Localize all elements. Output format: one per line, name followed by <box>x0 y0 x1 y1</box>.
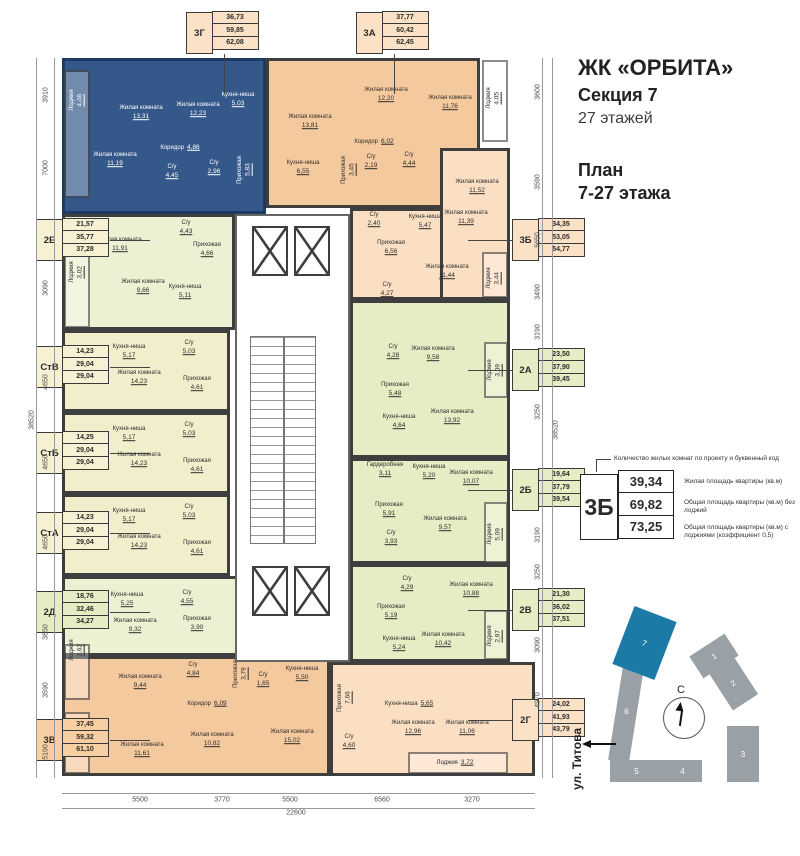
room-area: 3,90 <box>183 624 211 632</box>
room-area: 4,29 <box>401 584 414 592</box>
dimension-label: 3090 <box>43 280 50 296</box>
unit-areas: 36,7359,8562,08 <box>213 12 259 54</box>
room-name: Прихожая <box>377 604 405 612</box>
room-name: Лоджия <box>69 639 77 660</box>
room-area: 1,65 <box>257 680 270 688</box>
dim-line-left <box>54 58 55 778</box>
room-label: Жилая комната13,81 <box>288 114 331 130</box>
room-area: 5,03 <box>183 348 196 356</box>
room-label: С/у4,84 <box>187 662 200 678</box>
room-name: С/у <box>257 672 270 680</box>
room-name: Прихожая <box>183 458 211 466</box>
room-area: 14,23 <box>117 460 160 468</box>
room-area: 3,62 <box>77 639 85 660</box>
room-label: Жилая комната12,23 <box>176 102 219 118</box>
legend-callout-line <box>596 459 611 472</box>
dim-line-right-total <box>552 58 553 778</box>
room-name: Жилая комната <box>428 95 471 103</box>
room-name: С/у <box>208 160 221 168</box>
unit-leader-line <box>110 367 150 368</box>
room-label: Лоджия3,62 <box>69 639 85 660</box>
unit-area-value: 34,27 <box>62 615 109 629</box>
dimension-total-label: 22600 <box>286 810 305 817</box>
room-area: 11,52 <box>455 187 498 195</box>
room-label: Жилая комната10,88 <box>449 582 492 598</box>
unit-area-value: 54,77 <box>538 243 585 257</box>
room-name: Прихожая <box>193 242 221 250</box>
room-label: Прихожая3,45 <box>341 156 357 184</box>
room-name: Жилая комната <box>120 742 163 750</box>
room-label: Прихожая5,48 <box>381 382 409 398</box>
room-label: С/у4,44 <box>403 152 416 168</box>
dimension-label: 7000 <box>43 160 50 176</box>
room-area: 6,02 <box>381 138 394 146</box>
room-label: Жилая комната14,23 <box>117 370 160 386</box>
legend-sample-code: 3Б <box>580 474 618 540</box>
unit-area-value: 29,04 <box>62 456 109 470</box>
room-label: С/у1,65 <box>257 672 270 688</box>
room-label: Кухня-ниша5,47 <box>409 214 442 230</box>
unit-areas: 34,3553,0554,77 <box>539 219 585 261</box>
room-area: 10,07 <box>449 478 492 486</box>
dimension-label: 3590 <box>535 174 542 190</box>
dim-line-right <box>542 58 543 778</box>
room-label: Прихожая4,61 <box>183 458 211 474</box>
unit-area-value: 37,28 <box>62 243 109 257</box>
room-name: Кухня-ниша <box>413 464 446 472</box>
room-name: Лоджия <box>486 267 494 288</box>
room-name: Жилая комната <box>270 729 313 737</box>
room-name: Прихожая <box>375 502 403 510</box>
room-area: 3,72 <box>461 759 474 767</box>
dimension-label: 3770 <box>214 797 230 804</box>
room-label: С/у2,40 <box>368 212 381 228</box>
room-area: 4,86 <box>187 144 200 152</box>
room-label: Жилая комната11,39 <box>444 210 487 226</box>
dimension-label: 3490 <box>535 284 542 300</box>
legend-value-total: 69,82 <box>618 492 674 516</box>
room-area: 5,25 <box>111 600 144 608</box>
room-area: 4,64 <box>383 422 416 430</box>
dim-line-bottom <box>62 793 535 794</box>
section-title: Секция 7 <box>578 85 658 106</box>
unit-label-3А[interactable]: 3А37,7760,4262,45 <box>356 12 429 54</box>
room-area: 13,92 <box>430 417 473 425</box>
room-name: Кухня-ниша <box>385 701 418 709</box>
room-label: Жилая комната9,44 <box>118 674 161 690</box>
room-area: 3,11 <box>367 470 403 478</box>
room-label: Кухня-ниша5,03 <box>222 92 255 108</box>
room-area: 12,20 <box>364 95 407 103</box>
room-name: Жилая комната <box>423 516 466 524</box>
room-label: С/у4,27 <box>381 282 394 298</box>
room-name: С/у <box>403 152 416 160</box>
dimension-label: 4970 <box>535 692 542 708</box>
unit-areas: 37,4559,3261,10 <box>63 719 109 761</box>
room-label: Кухня-ниша5,25 <box>111 592 144 608</box>
room-label: Прихожая4,61 <box>183 540 211 556</box>
floor-plan-page: Жилая комната13,31Жилая комната12,23Кухн… <box>0 0 800 856</box>
room-label: Кухня-ниша5,11 <box>169 284 202 300</box>
room-name: С/у <box>365 154 378 162</box>
room-area: 4,61 <box>183 548 211 556</box>
room-area: 3,44 <box>494 267 502 288</box>
room-label: Жилая комната15,02 <box>270 729 313 745</box>
room-label: Жилая комната10,42 <box>421 632 464 648</box>
room-area: 11,06 <box>445 728 488 736</box>
dimension-label: 3850 <box>43 624 50 640</box>
room-area: 2,97 <box>495 625 503 646</box>
room-label: Прихожая6,56 <box>377 240 405 256</box>
room-area: 10,82 <box>190 740 233 748</box>
room-label: Кухня-ниша5,24 <box>383 636 416 652</box>
unit-leader-line <box>110 740 150 741</box>
unit-areas: 14,2329,0429,04 <box>63 512 109 554</box>
room-area: 4,84 <box>187 670 200 678</box>
room-name: Кухня-ниша <box>111 592 144 600</box>
room-name: Жилая комната <box>391 720 434 728</box>
unit-label-2В[interactable]: 2В21,3036,0237,51 <box>512 589 585 631</box>
room-name: Кухня-ниша <box>383 414 416 422</box>
room-label: С/у2,19 <box>365 154 378 170</box>
unit-label-2А[interactable]: 2А23,5037,9039,45 <box>512 349 585 391</box>
room-name: Кухня-ниша <box>383 636 416 644</box>
room-name: Жилая комната <box>411 346 454 354</box>
room-area: 4,55 <box>181 598 194 606</box>
room-name: Жилая комната <box>117 370 160 378</box>
room-area: 3,02 <box>77 261 85 282</box>
unit-code: 3Г <box>186 12 213 54</box>
room-label: Лоджия3,72 <box>437 759 474 768</box>
room-area: 5,09 <box>495 523 503 544</box>
legend-callout-text: Количество жилых комнат по проекту и бук… <box>614 455 794 462</box>
room-label: Жилая комната14,23 <box>117 534 160 550</box>
room-label: Кухня-ниша4,64 <box>383 414 416 430</box>
staircase-icon <box>250 336 316 544</box>
room-name: Прихожая <box>183 540 211 548</box>
room-area: 4,46 <box>77 89 85 110</box>
room-label: Кухня-ниша6,55 <box>287 160 320 176</box>
street-arrow-head-icon <box>582 740 591 748</box>
room-name: С/у <box>368 212 381 220</box>
room-name: Прихожая <box>337 684 345 712</box>
room-name: Жилая комната <box>449 470 492 478</box>
room-label: Лоджия3,02 <box>69 261 85 282</box>
minimap-building-3[interactable]: 3 <box>727 726 759 782</box>
room-label: Кухня-ниша5,65 <box>385 700 434 709</box>
room-name: Лоджия <box>437 760 458 768</box>
room-label: Жилая комната11,61 <box>120 742 163 758</box>
dimension-label: 3910 <box>43 87 50 103</box>
dimension-label: 5500 <box>132 797 148 804</box>
room-name: Жилая комната <box>288 114 331 122</box>
dimension-label: 3250 <box>535 404 542 420</box>
room-area: 15,02 <box>270 737 313 745</box>
room-name: Жилая комната <box>444 210 487 218</box>
room-name: С/у <box>385 530 398 538</box>
elevator-shaft-icon <box>294 566 330 616</box>
room-area: 5,03 <box>183 512 196 520</box>
room-area: 5,83 <box>245 156 253 184</box>
room-area: 3,79 <box>241 660 249 688</box>
room-label: Жилая комната9,58 <box>411 346 454 362</box>
floors-subtitle: 27 этажей <box>578 110 653 128</box>
unit-leader-line <box>110 240 150 241</box>
room-label: С/у4,45 <box>166 164 179 180</box>
room-area: 9,57 <box>423 524 466 532</box>
room-name: Кухня-ниша <box>287 160 320 168</box>
room-area: 5,03 <box>183 430 196 438</box>
dim-line-bottom-total <box>62 808 535 809</box>
room-name: Кухня-ниша <box>169 284 202 292</box>
unit-leader-line <box>468 720 512 721</box>
room-name: Коридор <box>187 701 211 709</box>
room-label: Прихожая5,91 <box>375 502 403 518</box>
legend-value-total-loggia: 73,25 <box>618 515 674 539</box>
room-label: Кухня-ниша5,17 <box>113 344 146 360</box>
dimension-label: 4650 <box>43 534 50 550</box>
unit-area-value: 39,45 <box>538 373 585 387</box>
unit-leader-line <box>224 54 225 94</box>
room-name: Жилая комната <box>113 618 156 626</box>
room-label: Лоджия4,05 <box>486 87 502 108</box>
unit-leader-line <box>110 533 150 534</box>
unit-label-3Б[interactable]: 3Б34,3553,0554,77 <box>512 219 585 261</box>
room-area: 3,45 <box>349 156 357 184</box>
unit-area-value: 61,10 <box>62 743 109 757</box>
dimension-label: 5190 <box>43 744 50 760</box>
room-label: Прихожая4,66 <box>193 242 221 258</box>
room-name: Коридор <box>160 145 184 153</box>
room-label: Жилая комната9,57 <box>423 516 466 532</box>
room-area: 5,47 <box>409 222 442 230</box>
legend-sample-values: 39,34 69,82 73,25 <box>618 471 674 539</box>
room-label: Жилая комната9,66 <box>121 279 164 295</box>
room-name: Жилая комната <box>445 720 488 728</box>
room-name: Жилая комната <box>119 105 162 113</box>
room-area: 5,65 <box>421 700 434 708</box>
unit-code: 2Д <box>36 591 63 633</box>
room-label: Лоджия4,46 <box>69 89 85 110</box>
room-name: Жилая комната <box>425 264 468 272</box>
room-name: Прихожая <box>183 616 211 624</box>
dimension-label: 3250 <box>535 564 542 580</box>
unit-areas: 19,6437,7939,54 <box>539 469 585 511</box>
elevator-shaft-icon <box>252 226 288 276</box>
room-label: Жилая комната10,82 <box>190 732 233 748</box>
room-name: Лоджия <box>69 89 77 110</box>
room-name: Жилая комната <box>364 87 407 95</box>
room-name: С/у <box>166 164 179 172</box>
room-label: Прихожая5,19 <box>377 604 405 620</box>
room-area: 4,61 <box>183 384 211 392</box>
room-name: С/у <box>387 344 400 352</box>
room-label: Жилая комната11,19 <box>93 152 136 168</box>
elevator-shaft-icon <box>294 226 330 276</box>
room-area: 5,17 <box>113 434 146 442</box>
room-name: Лоджия <box>486 87 494 108</box>
room-label: Лоджия5,09 <box>487 523 503 544</box>
room-label: Жилая комната13,31 <box>119 105 162 121</box>
room-area: 13,31 <box>119 113 162 121</box>
room-area: 11,61 <box>120 750 163 758</box>
dimension-label: 6560 <box>374 797 390 804</box>
room-name: Прихожая <box>341 156 349 184</box>
room-area: 5,48 <box>381 390 409 398</box>
room-area: 5,50 <box>286 674 319 682</box>
room-label: Лоджия3,44 <box>486 267 502 288</box>
unit-leader-line <box>468 610 512 611</box>
room-label: С/у4,28 <box>387 344 400 360</box>
room-name: С/у <box>183 340 196 348</box>
room-area: 4,44 <box>403 160 416 168</box>
unit-leader-line <box>468 490 512 491</box>
room-area: 11,76 <box>428 103 471 111</box>
room-name: Жилая комната <box>121 279 164 287</box>
room-area: 5,11 <box>169 292 202 300</box>
room-name: Жилая комната <box>449 582 492 590</box>
legend-desc-total-loggia: Общая площадь квартиры (кв.м) с лоджиями… <box>684 524 799 540</box>
room-label: Жилая комната12,20 <box>364 87 407 103</box>
dimension-label: 3270 <box>464 797 480 804</box>
room-name: С/у <box>401 576 414 584</box>
legend-desc-total: Общая площадь квартиры (кв.м) без лоджий <box>684 499 799 515</box>
unit-areas: 21,5735,7737,28 <box>63 219 109 261</box>
room-name: Кухня-ниша <box>113 508 146 516</box>
unit-leader-line <box>468 240 512 241</box>
street-arrow-icon <box>590 743 616 745</box>
room-label: С/у3,93 <box>385 530 398 546</box>
room-name: Жилая комната <box>93 152 136 160</box>
room-area: 4,61 <box>183 466 211 474</box>
room-area: 9,66 <box>121 287 164 295</box>
room-area: 13,81 <box>288 122 331 130</box>
plan-title-line2: 7-27 этажа <box>578 183 671 204</box>
room-name: Гардеробная <box>367 462 403 470</box>
room-label: Коридор4,86 <box>160 144 199 153</box>
room-area: 7,66 <box>345 684 353 712</box>
dim-line-left-total <box>36 58 37 778</box>
room-area: 4,45 <box>166 172 179 180</box>
room-label: Жилая комната10,07 <box>449 470 492 486</box>
room-area: 4,66 <box>193 250 221 258</box>
room-label: Коридор6,09 <box>187 700 226 709</box>
minimap-building-4[interactable]: 4 <box>663 760 702 782</box>
unit-area-value: 39,54 <box>538 493 585 507</box>
room-label: С/у5,03 <box>183 422 196 438</box>
north-arrow-head-icon <box>675 701 684 711</box>
room-label: Прихожая3,79 <box>233 660 249 688</box>
room-name: Коридор <box>354 139 378 147</box>
unit-leader-line <box>110 453 150 454</box>
unit-areas: 23,5037,9039,45 <box>539 349 585 391</box>
unit-code: 3А <box>356 12 383 54</box>
room-name: Жилая комната <box>455 179 498 187</box>
room-area: 14,23 <box>117 542 160 550</box>
room-name: Прихожая <box>237 156 245 184</box>
room-name: Кухня-ниша <box>113 344 146 352</box>
room-label: С/у4,29 <box>401 576 414 592</box>
room-area: 5,03 <box>222 100 255 108</box>
minimap-building-5[interactable]: 5 <box>610 760 663 782</box>
room-label: Жилая комната14,23 <box>117 452 160 468</box>
room-name: Жилая комната <box>176 102 219 110</box>
dimension-total-label: 38520 <box>29 410 36 429</box>
dimension-label: 3190 <box>535 324 542 340</box>
room-label: Жилая комната12,96 <box>391 720 434 736</box>
dimension-label: 5500 <box>282 797 298 804</box>
unit-areas: 14,2329,0429,04 <box>63 346 109 388</box>
room-label: Жилая комната9,32 <box>113 618 156 634</box>
room-label: Гардеробная3,11 <box>367 462 403 478</box>
room-area: 12,96 <box>391 728 434 736</box>
unit-area-value: 29,04 <box>62 370 109 384</box>
room-area: 14,23 <box>117 378 160 386</box>
unit-code: СтБ <box>36 432 63 474</box>
room-name: Жилая комната <box>421 632 464 640</box>
unit-code: 2А <box>512 349 539 391</box>
room-label: С/у4,60 <box>343 734 356 750</box>
unit-code: 2В <box>512 589 539 631</box>
plan-title-line1: План <box>578 160 623 181</box>
room-label: Жилая комната11,76 <box>428 95 471 111</box>
room-name: Прихожая <box>233 660 241 688</box>
elevator-shaft-icon <box>252 566 288 616</box>
apartment-region-3g[interactable] <box>62 58 266 214</box>
unit-area-value: 62,08 <box>212 36 259 50</box>
room-label: С/у4,43 <box>180 220 193 236</box>
room-name: Кухня-ниша <box>222 92 255 100</box>
room-area: 9,58 <box>411 354 454 362</box>
complex-title: ЖК «ОРБИТА» <box>578 55 733 81</box>
room-area: 12,23 <box>176 110 219 118</box>
unit-label-3Г[interactable]: 3Г36,7359,8562,08 <box>186 12 259 54</box>
room-label: С/у2,96 <box>208 160 221 176</box>
room-area: 5,24 <box>383 644 416 652</box>
room-label: С/у4,55 <box>181 590 194 606</box>
unit-areas: 14,2529,0429,04 <box>63 432 109 474</box>
unit-leader-line <box>468 370 512 371</box>
room-area: 6,55 <box>287 168 320 176</box>
dimension-label: 3590 <box>43 682 50 698</box>
room-area: 2,19 <box>365 162 378 170</box>
unit-label-2Б[interactable]: 2Б19,6437,7939,54 <box>512 469 585 511</box>
unit-label-2Е[interactable]: 2Е21,5735,7737,28 <box>36 219 109 261</box>
room-label: Кухня-ниша5,50 <box>286 666 319 682</box>
room-area: 9,32 <box>113 626 156 634</box>
room-name: С/у <box>181 590 194 598</box>
unit-areas: 37,7760,4262,45 <box>383 12 429 54</box>
legend-value-living: 39,34 <box>618 470 674 494</box>
room-label: С/у5,03 <box>183 504 196 520</box>
unit-areas: 18,7632,4634,27 <box>63 591 109 633</box>
dimension-label: 5650 <box>535 232 542 248</box>
unit-code: СтА <box>36 512 63 554</box>
dimension-total-label: 38520 <box>553 420 560 439</box>
room-area: 11,44 <box>425 272 468 280</box>
room-area: 5,19 <box>377 612 405 620</box>
room-area: 11,19 <box>93 160 136 168</box>
room-name: Кухня-ниша <box>113 426 146 434</box>
room-name: Прихожая <box>183 376 211 384</box>
room-name: Жилая комната <box>190 732 233 740</box>
room-label: Прихожая7,66 <box>337 684 353 712</box>
north-label: С <box>677 684 685 696</box>
room-area: 4,43 <box>180 228 193 236</box>
room-name: Кухня-ниша <box>409 214 442 222</box>
unit-areas: 21,3036,0237,51 <box>539 589 585 631</box>
room-area: 5,17 <box>113 516 146 524</box>
